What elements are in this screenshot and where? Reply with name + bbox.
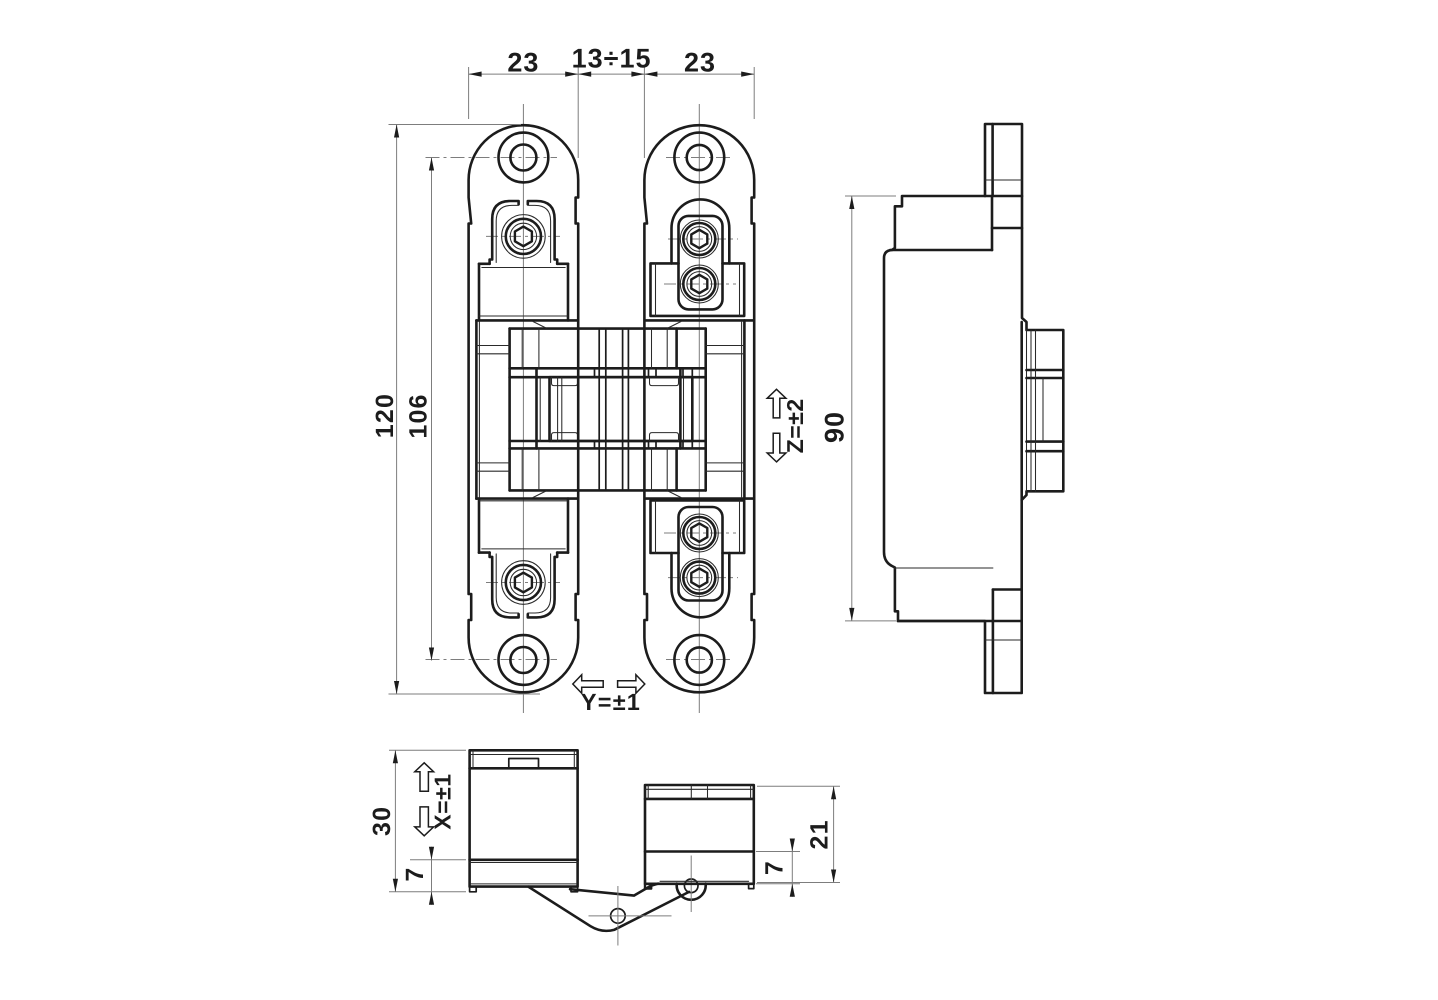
svg-text:23: 23 bbox=[684, 48, 716, 78]
svg-text:23: 23 bbox=[507, 48, 539, 78]
svg-text:Y=±1: Y=±1 bbox=[581, 689, 641, 715]
svg-text:106: 106 bbox=[405, 393, 433, 438]
svg-text:7: 7 bbox=[401, 866, 429, 881]
svg-text:90: 90 bbox=[820, 411, 850, 443]
svg-text:120: 120 bbox=[371, 393, 399, 438]
svg-text:13÷15: 13÷15 bbox=[572, 44, 652, 74]
svg-text:X=±1: X=±1 bbox=[430, 774, 456, 830]
svg-text:Z=±2: Z=±2 bbox=[782, 398, 808, 453]
svg-text:7: 7 bbox=[761, 860, 789, 875]
svg-text:30: 30 bbox=[368, 806, 396, 836]
svg-text:21: 21 bbox=[806, 819, 834, 849]
